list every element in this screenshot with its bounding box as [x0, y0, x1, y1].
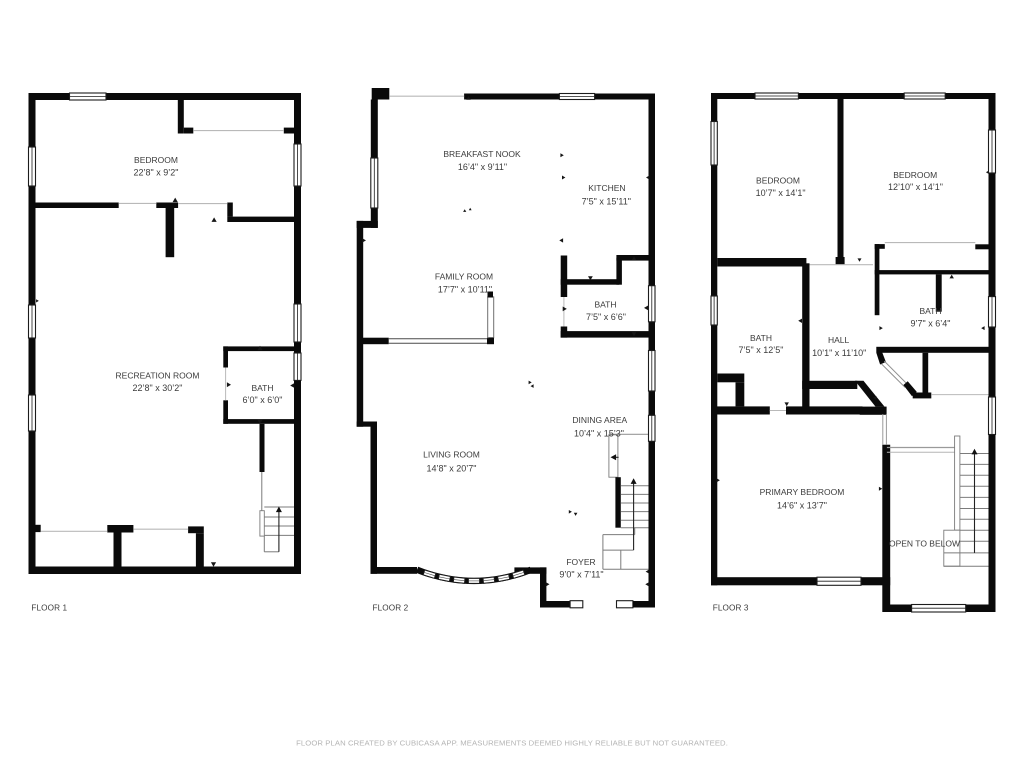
svg-text:FOYER: FOYER [566, 557, 595, 567]
svg-text:HALL: HALL [828, 335, 850, 345]
svg-text:9’7" x 6’4": 9’7" x 6’4" [911, 318, 951, 328]
svg-text:BATH: BATH [251, 383, 273, 393]
svg-text:22’8" x 30’2": 22’8" x 30’2" [133, 383, 183, 393]
svg-text:7’5" x 6’6": 7’5" x 6’6" [586, 312, 626, 322]
svg-text:16’4" x 9’11": 16’4" x 9’11" [458, 162, 507, 172]
svg-text:7’5" x 12’5": 7’5" x 12’5" [739, 345, 784, 355]
svg-text:14’8" x 20’7": 14’8" x 20’7" [427, 463, 477, 473]
svg-text:FLOOR 3: FLOOR 3 [713, 604, 749, 613]
svg-text:BATH: BATH [594, 299, 616, 309]
svg-text:FAMILY ROOM: FAMILY ROOM [435, 272, 493, 282]
svg-text:12’10" x 14’1": 12’10" x 14’1" [888, 182, 943, 192]
svg-text:FLOOR PLAN CREATED BY CUBICASA: FLOOR PLAN CREATED BY CUBICASA APP. MEAS… [296, 739, 728, 748]
svg-text:BATH: BATH [750, 333, 772, 343]
svg-text:BATH: BATH [919, 306, 941, 316]
svg-text:BEDROOM: BEDROOM [134, 155, 178, 165]
svg-text:OPEN TO BELOW: OPEN TO BELOW [889, 538, 960, 548]
svg-text:BEDROOM: BEDROOM [893, 170, 937, 180]
svg-text:6’0" x 6’0": 6’0" x 6’0" [243, 395, 283, 405]
svg-text:10’7" x 14’1": 10’7" x 14’1" [756, 188, 806, 198]
svg-text:9’0" x 7’11": 9’0" x 7’11" [559, 570, 603, 580]
svg-text:PRIMARY BEDROOM: PRIMARY BEDROOM [760, 487, 845, 497]
svg-text:10’1" x 11’10": 10’1" x 11’10" [812, 348, 866, 358]
svg-text:LIVING ROOM: LIVING ROOM [423, 449, 480, 459]
svg-text:17’7" x 10’11": 17’7" x 10’11" [438, 285, 492, 295]
svg-text:RECREATION ROOM: RECREATION ROOM [116, 370, 200, 380]
svg-text:7’5" x 15’11": 7’5" x 15’11" [582, 196, 631, 206]
svg-text:KITCHEN: KITCHEN [588, 183, 625, 193]
svg-text:BREAKFAST NOOK: BREAKFAST NOOK [443, 149, 521, 159]
svg-text:DINING AREA: DINING AREA [572, 415, 627, 425]
svg-text:14’6" x 13’7": 14’6" x 13’7" [777, 500, 827, 510]
svg-text:10’4" x 15’3": 10’4" x 15’3" [574, 428, 624, 438]
svg-text:22’8" x 9’2": 22’8" x 9’2" [134, 168, 179, 178]
svg-text:FLOOR 2: FLOOR 2 [373, 604, 409, 613]
svg-text:BEDROOM: BEDROOM [756, 175, 800, 185]
svg-text:FLOOR 1: FLOOR 1 [31, 604, 67, 613]
